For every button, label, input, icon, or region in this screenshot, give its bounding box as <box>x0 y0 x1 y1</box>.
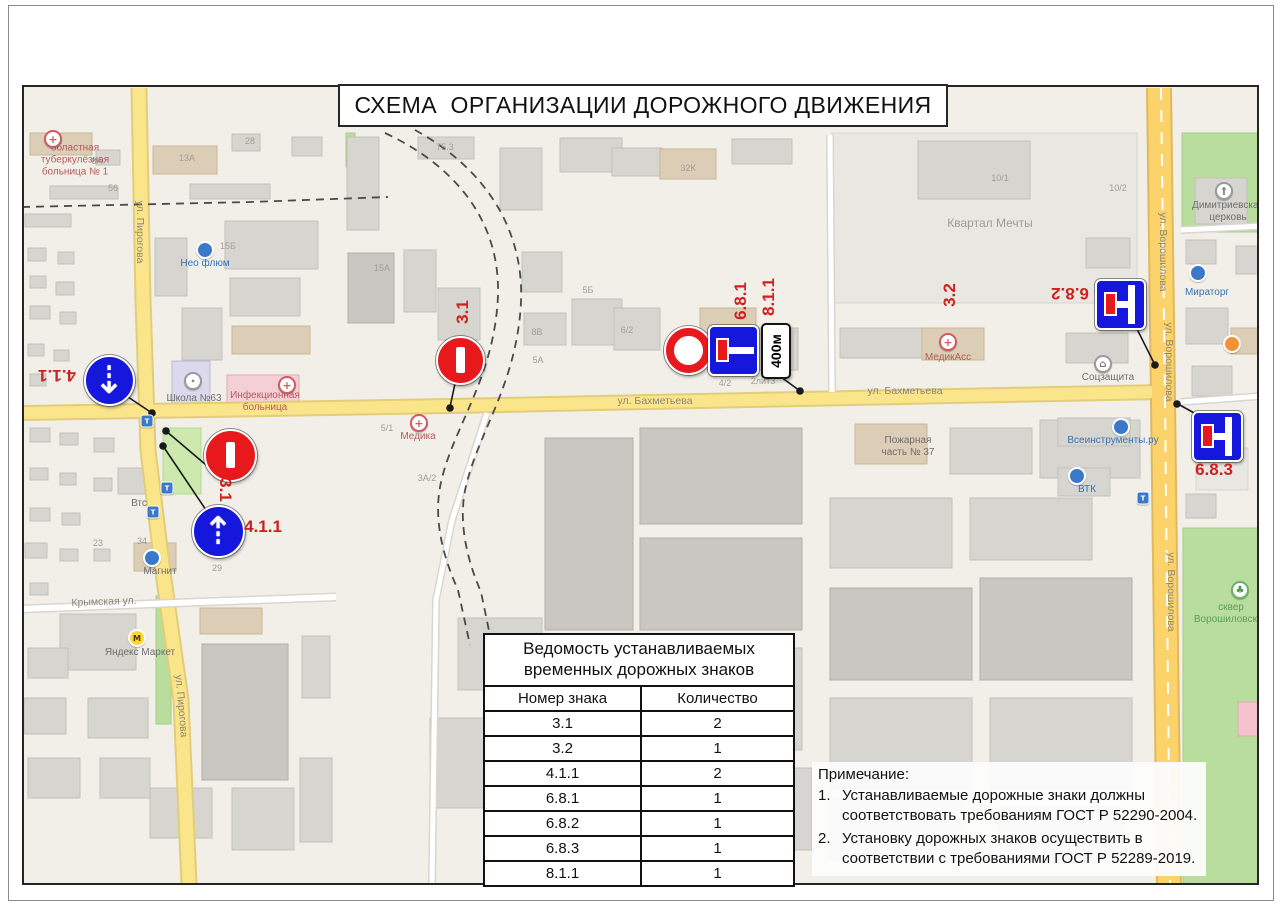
notes-block: Примечание: 1.Устанавливаемые дорожные з… <box>812 762 1206 876</box>
page-title: СХЕМА ОРГАНИЗАЦИИ ДОРОЖНОГО ДВИЖЕНИЯ <box>354 92 931 119</box>
building-number: 75.3 <box>436 142 454 152</box>
distance-value: 400м <box>750 338 802 364</box>
building <box>1086 238 1130 268</box>
building-number: 3А/2 <box>418 473 437 483</box>
building <box>94 438 114 452</box>
building <box>25 214 71 227</box>
building-number: 6/2 <box>621 325 634 335</box>
building <box>94 549 110 561</box>
building <box>202 644 288 780</box>
building <box>30 508 50 521</box>
prohibition-ring-icon <box>666 328 711 373</box>
page: ++++•⌂†М♣ТТТТ областная туберкулёзная бо… <box>0 0 1280 904</box>
building-number: 8А <box>91 156 102 166</box>
building <box>640 428 802 524</box>
blue-poi-icon <box>143 549 161 567</box>
cell-sign-number: 4.1.1 <box>485 762 642 785</box>
building <box>28 248 46 261</box>
cell-sign-number: 3.2 <box>485 737 642 760</box>
building <box>94 478 112 491</box>
building <box>840 328 922 358</box>
building <box>28 758 80 798</box>
traffic-sign-4.1.1: ⇣ <box>84 355 135 406</box>
cell-quantity: 1 <box>642 837 793 860</box>
building-number: 34 <box>137 536 147 546</box>
cell-quantity: 1 <box>642 787 793 810</box>
table-row: 6.8.11 <box>485 787 793 812</box>
building <box>54 350 69 361</box>
table-row: 6.8.31 <box>485 837 793 862</box>
table-row: 4.1.12 <box>485 762 793 787</box>
building <box>970 498 1092 560</box>
sign-number-label: 4.1.1 <box>38 365 76 385</box>
table-row: 3.21 <box>485 737 793 762</box>
note-number: 2. <box>818 829 842 870</box>
direction-arrow-icon: ⇣ <box>86 357 133 404</box>
building-number: 56 <box>108 183 118 193</box>
building <box>640 538 802 630</box>
building <box>60 312 76 324</box>
building <box>56 282 74 295</box>
building-number: 5А <box>532 355 543 365</box>
sign-number-label: 4.1.1 <box>244 517 282 537</box>
building <box>60 473 76 485</box>
sign-number-label: 8.1.1 <box>759 278 779 316</box>
note-text: Установку дорожных знаков осуществить в … <box>842 829 1200 870</box>
table-row: 3.12 <box>485 712 793 737</box>
dead-end-stub-icon <box>1201 424 1214 448</box>
building <box>292 137 322 156</box>
building <box>190 184 270 199</box>
building <box>30 468 48 480</box>
blue-poi-icon <box>1189 264 1207 282</box>
building <box>302 636 330 698</box>
cell-sign-number: 8.1.1 <box>485 862 642 885</box>
traffic-sign-3.1 <box>204 429 257 482</box>
table-header: Номер знака Количество <box>485 687 793 712</box>
medical-poi-icon: + <box>410 414 428 432</box>
building-number: 15Б <box>220 241 236 251</box>
building <box>60 614 136 670</box>
cell-sign-number: 6.8.2 <box>485 812 642 835</box>
building <box>1238 702 1259 736</box>
traffic-sign-3.2 <box>664 326 713 375</box>
building <box>200 608 262 634</box>
table-row: 6.8.21 <box>485 812 793 837</box>
cell-quantity: 1 <box>642 862 793 885</box>
building-number: 13А <box>179 153 195 163</box>
table-row: 8.1.11 <box>485 862 793 885</box>
building <box>182 308 222 360</box>
building <box>300 758 332 842</box>
notes-heading: Примечание: <box>818 766 1200 783</box>
building <box>62 513 80 525</box>
cell-quantity: 2 <box>642 712 793 735</box>
building-number: 32К <box>680 163 695 173</box>
building <box>230 278 300 316</box>
building <box>855 424 927 464</box>
building <box>545 438 633 630</box>
cell-quantity: 1 <box>642 737 793 760</box>
blue-poi-icon <box>196 241 214 259</box>
building <box>522 252 562 292</box>
building <box>1186 308 1228 344</box>
building-number: 4/2 <box>719 378 732 388</box>
yellow-poi-icon: М <box>128 629 146 647</box>
sign-number-label: 6.8.1 <box>731 282 751 320</box>
signs-table: Ведомость устанавливаемых временных доро… <box>483 633 795 887</box>
table-header-quantity: Количество <box>642 687 793 710</box>
building-number: 5/1 <box>381 423 394 433</box>
building-number: 10/2 <box>1109 183 1127 193</box>
social-poi-icon: ⌂ <box>1094 355 1112 373</box>
building <box>404 250 436 312</box>
note-text: Устанавливаемые дорожные знаки должны со… <box>842 786 1200 827</box>
note-number: 1. <box>818 786 842 827</box>
blue-poi-icon <box>1068 467 1086 485</box>
building-number: 23 <box>93 538 103 548</box>
traffic-sign-6.8.3 <box>1192 411 1243 462</box>
table-title: Ведомость устанавливаемых временных доро… <box>485 635 793 687</box>
school-poi-icon: • <box>184 372 202 390</box>
building <box>1192 366 1232 396</box>
building <box>60 549 78 561</box>
transport-poi-icon: Т <box>141 415 154 428</box>
building <box>1186 240 1216 264</box>
building <box>30 583 48 595</box>
traffic-sign-6.8.2 <box>1095 279 1146 330</box>
building <box>950 428 1032 474</box>
building <box>830 498 952 568</box>
sign-number-label: 6.8.3 <box>1195 460 1233 480</box>
dead-end-stub-icon <box>716 338 729 362</box>
transport-poi-icon: Т <box>147 506 160 519</box>
building <box>155 238 187 296</box>
cell-sign-number: 3.1 <box>485 712 642 735</box>
building <box>347 137 379 230</box>
building-number: 10/1 <box>991 173 1009 183</box>
building <box>24 698 66 734</box>
no-entry-bar-icon <box>456 347 465 373</box>
sign-number-label: 3.2 <box>940 283 960 307</box>
table-title-line2: временных дорожных знаков <box>485 659 793 680</box>
sign-number-label: 3.1 <box>453 300 473 324</box>
sign-number-label: 3.1 <box>215 478 235 502</box>
building <box>1236 246 1259 274</box>
building <box>500 148 542 210</box>
building-number: 28 <box>245 136 255 146</box>
cell-quantity: 1 <box>642 812 793 835</box>
traffic-sign-4.1.1: ⇡ <box>192 505 245 558</box>
building-number: 15А <box>374 263 390 273</box>
building <box>612 148 662 176</box>
title-box: СХЕМА ОРГАНИЗАЦИИ ДОРОЖНОГО ДВИЖЕНИЯ <box>338 84 948 127</box>
medical-poi-icon: + <box>44 130 62 148</box>
building <box>58 252 74 264</box>
table-header-sign-number: Номер знака <box>485 687 642 710</box>
direction-arrow-icon: ⇡ <box>194 507 243 556</box>
no-entry-bar-icon <box>226 442 235 468</box>
blue-poi-icon <box>1112 418 1130 436</box>
traffic-sign-3.1 <box>436 336 485 385</box>
building <box>100 758 150 798</box>
building <box>25 543 47 558</box>
building <box>225 221 318 269</box>
building <box>980 578 1132 680</box>
building <box>28 648 68 678</box>
building-number: 8В <box>531 327 542 337</box>
building-number: 29 <box>212 563 222 573</box>
building-number: 5Б <box>583 285 594 295</box>
traffic-sign-8.1.1: 400м <box>761 323 791 379</box>
tree-poi-icon: ♣ <box>1231 581 1249 599</box>
building <box>60 433 78 445</box>
building <box>524 313 566 345</box>
table-title-line1: Ведомость устанавливаемых <box>485 638 793 659</box>
transport-poi-icon: Т <box>161 482 174 495</box>
church-poi-icon: † <box>1215 182 1233 200</box>
building <box>732 139 792 164</box>
dead-end-stub-icon <box>1104 292 1117 316</box>
notes-items: 1.Устанавливаемые дорожные знаки должны … <box>818 786 1200 869</box>
orange-poi-icon <box>1223 335 1241 353</box>
cell-quantity: 2 <box>642 762 793 785</box>
cell-sign-number: 6.8.1 <box>485 787 642 810</box>
building <box>30 428 50 442</box>
medical-poi-icon: + <box>278 376 296 394</box>
building <box>918 141 1030 199</box>
building <box>1186 494 1216 518</box>
note-item: 2.Установку дорожных знаков осуществить … <box>818 829 1200 870</box>
building <box>28 344 44 356</box>
building <box>830 588 972 680</box>
building <box>88 698 148 738</box>
sign-number-label: 6.8.2 <box>1051 283 1089 303</box>
building <box>232 788 294 850</box>
building <box>30 306 50 319</box>
note-item: 1.Устанавливаемые дорожные знаки должны … <box>818 786 1200 827</box>
cell-sign-number: 6.8.3 <box>485 837 642 860</box>
transport-poi-icon: Т <box>1137 492 1150 505</box>
building <box>232 326 310 354</box>
building <box>30 276 46 288</box>
medical-poi-icon: + <box>939 333 957 351</box>
table-body: 3.123.214.1.126.8.116.8.216.8.318.1.11 <box>485 712 793 885</box>
